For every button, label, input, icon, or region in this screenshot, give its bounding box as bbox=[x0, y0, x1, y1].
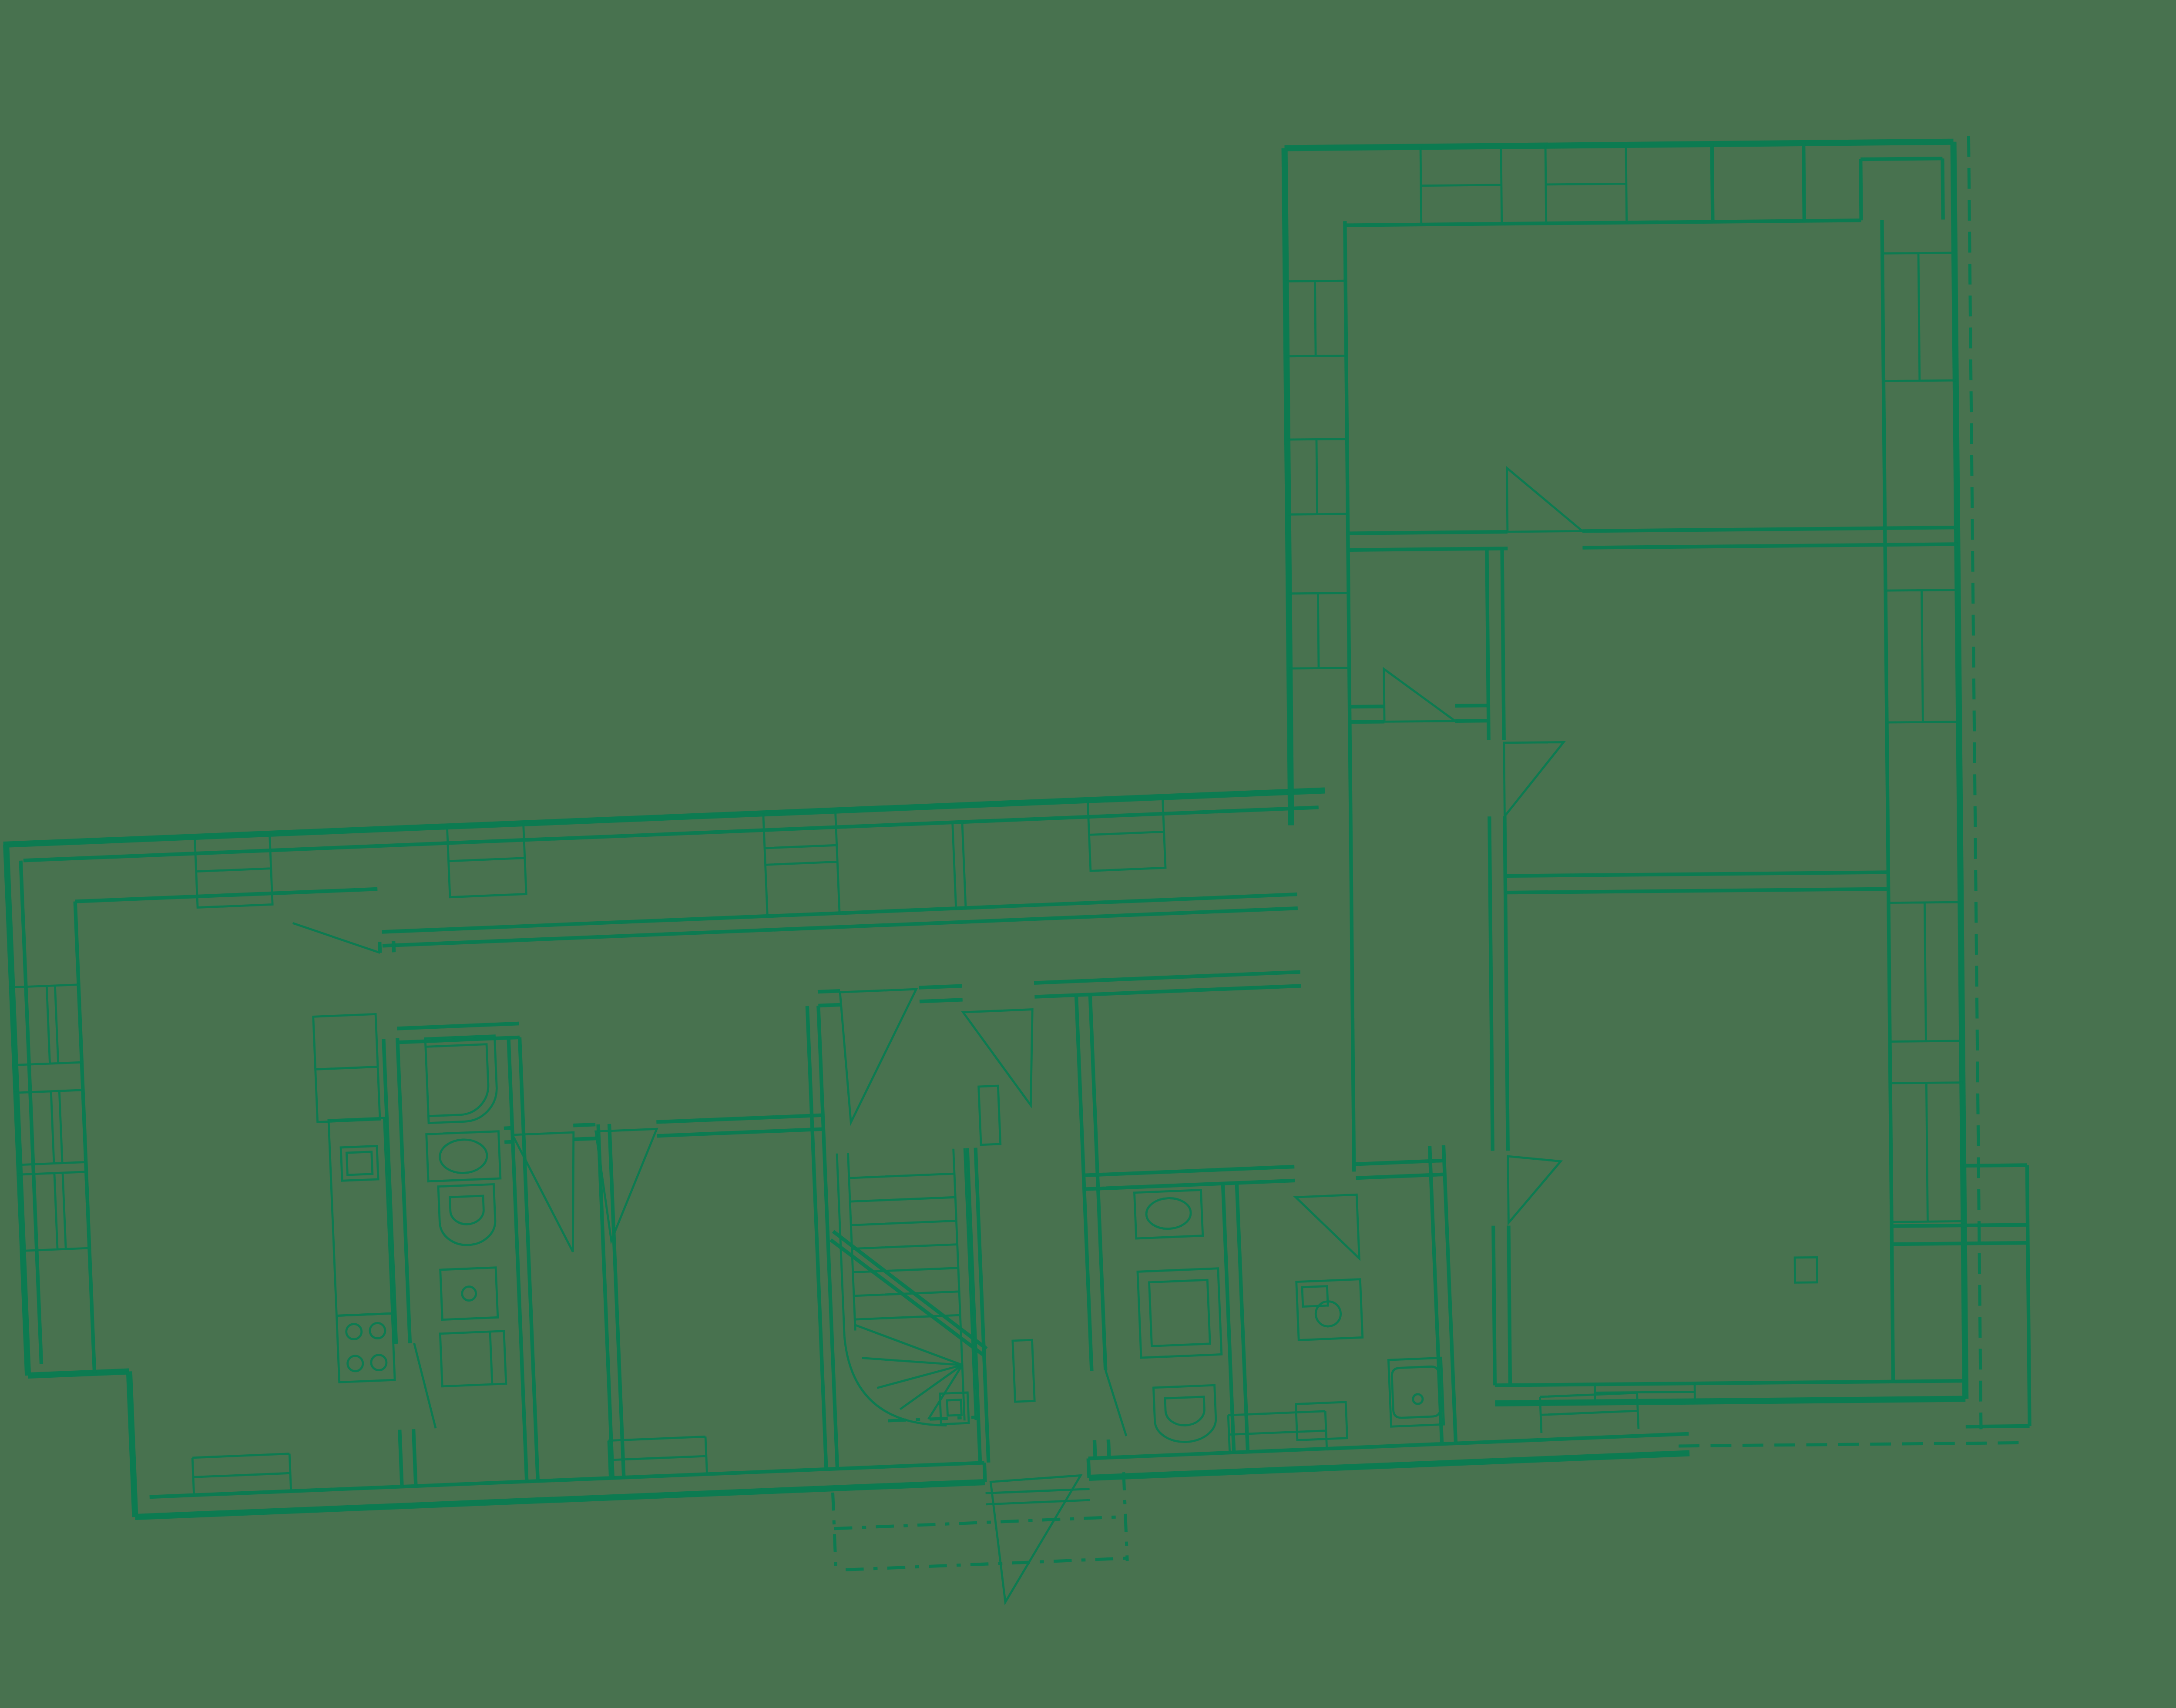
plan-line bbox=[1860, 159, 1861, 220]
plan-line bbox=[1942, 158, 1943, 219]
floor-plan-page bbox=[0, 0, 2176, 1708]
floor-plan-canvas bbox=[0, 0, 2176, 1708]
plan-line bbox=[1860, 158, 1942, 159]
plan-line bbox=[28, 1372, 129, 1376]
background bbox=[0, 128, 2176, 1580]
